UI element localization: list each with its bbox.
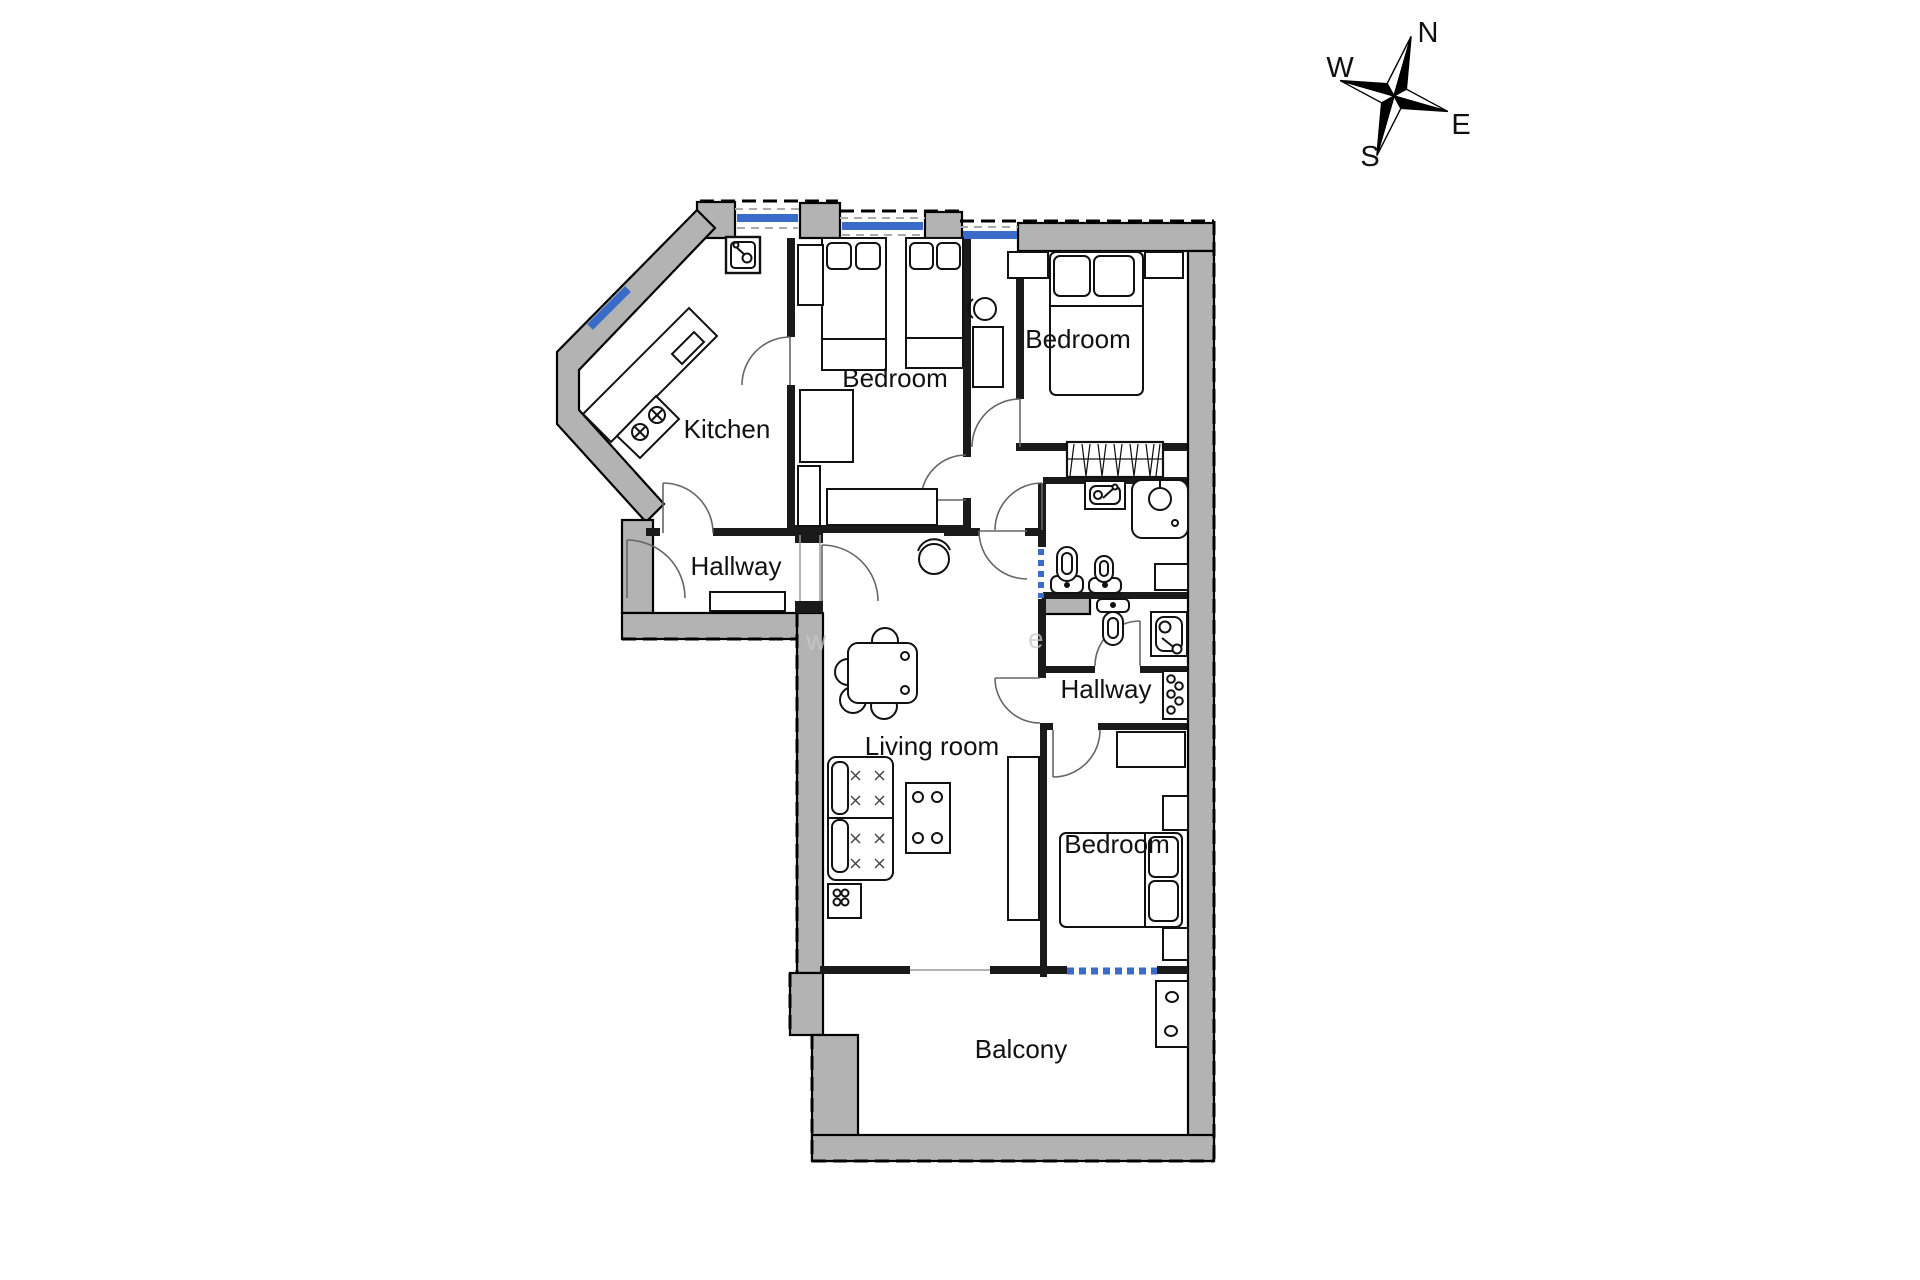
compass-star bbox=[1323, 21, 1465, 171]
wall-kitchen-east-lower bbox=[787, 385, 795, 533]
side-table bbox=[828, 884, 861, 918]
label-bedroom-bottom: Bedroom bbox=[1064, 829, 1170, 859]
wall-top-pier3 bbox=[925, 212, 962, 238]
compass-west-label: W bbox=[1326, 52, 1354, 84]
wc-toilet bbox=[1097, 599, 1129, 645]
wall-balcony-step bbox=[790, 973, 823, 1035]
label-bedroom-top-left: Bedroom bbox=[842, 363, 948, 393]
wc-sink bbox=[1151, 612, 1187, 656]
compass-east-label: E bbox=[1451, 109, 1470, 141]
kitchen-sink bbox=[726, 237, 760, 273]
wall-wc-notch bbox=[1043, 597, 1090, 614]
hallway1-shelf bbox=[710, 592, 785, 611]
bed-single-left bbox=[822, 238, 886, 370]
door-corridor-living bbox=[979, 531, 1027, 579]
dresser bbox=[827, 489, 937, 525]
wardrobe bbox=[1117, 732, 1185, 767]
door-kitchen-hallway bbox=[663, 483, 713, 533]
compass-north-label: N bbox=[1418, 17, 1439, 49]
compass-south-label: S bbox=[1360, 141, 1379, 173]
floor-plan: w e Kitchen Bedroom Bedroom Hallway Hall… bbox=[0, 0, 1920, 1280]
watermark-left: w bbox=[805, 625, 827, 656]
compass: N W E S bbox=[1323, 17, 1471, 173]
dining-set bbox=[835, 628, 917, 719]
niche-stool bbox=[968, 298, 996, 320]
wall-bedroom1-east-lower bbox=[963, 498, 971, 533]
label-kitchen: Kitchen bbox=[684, 414, 771, 444]
wall-bedroom1-east-upper bbox=[963, 238, 971, 457]
door-bedroom3 bbox=[1053, 730, 1100, 777]
watermark: w e bbox=[805, 623, 1044, 656]
wall-wc-south-a bbox=[1043, 666, 1095, 673]
coffee-table bbox=[906, 783, 950, 853]
door-bedroom2 bbox=[972, 399, 1020, 447]
living-room-furniture bbox=[828, 539, 1039, 920]
nightstand-right bbox=[1145, 252, 1183, 278]
shelf-b bbox=[1163, 928, 1188, 960]
wall-bedroom3-west bbox=[1040, 723, 1047, 977]
wall-hallway-south-band bbox=[622, 613, 800, 639]
wardrobe-a bbox=[798, 245, 823, 305]
floorplan-page: w e Kitchen Bedroom Bedroom Hallway Hall… bbox=[0, 0, 1920, 1280]
bidet bbox=[1089, 556, 1121, 593]
label-balcony: Balcony bbox=[975, 1034, 1068, 1064]
radiator bbox=[1067, 442, 1163, 477]
wc-fixtures bbox=[1097, 599, 1187, 656]
wall-living-west-band bbox=[797, 613, 823, 973]
door-kitchen-bedroom1 bbox=[742, 337, 790, 385]
wall-hallway1-north-a bbox=[646, 528, 660, 536]
wall-kitchen-east-upper bbox=[787, 238, 795, 337]
toilet bbox=[1051, 547, 1083, 593]
room-labels: Kitchen Bedroom Bedroom Hallway Hallway … bbox=[684, 324, 1170, 1064]
wall-bedroom3-north-b bbox=[1098, 723, 1187, 730]
desk bbox=[800, 390, 853, 462]
bath-sink bbox=[1085, 481, 1125, 509]
wall-bedroom3-south-a bbox=[1047, 966, 1067, 974]
wall-hallway1-north-b bbox=[713, 528, 797, 536]
label-hallway-left: Hallway bbox=[690, 551, 781, 581]
sofa bbox=[828, 757, 893, 880]
door-hallway2-living bbox=[995, 678, 1040, 723]
hallway2-heater bbox=[1163, 671, 1188, 719]
bed-single-right bbox=[906, 238, 963, 368]
bathroom-fixtures bbox=[1051, 442, 1188, 593]
label-living-room: Living room bbox=[865, 731, 999, 761]
balcony-furniture bbox=[1156, 981, 1188, 1047]
wall-corridor-south-a bbox=[944, 528, 980, 536]
tv-cabinet bbox=[1008, 757, 1039, 920]
bathtub bbox=[1132, 479, 1188, 538]
watermark-right: e bbox=[1028, 623, 1044, 654]
nightstand-left bbox=[1008, 252, 1048, 278]
door-hallway-living bbox=[822, 545, 878, 601]
plant bbox=[918, 539, 950, 574]
label-hallway-right: Hallway bbox=[1060, 674, 1151, 704]
wall-right-band bbox=[1188, 251, 1214, 1161]
planter-box bbox=[1156, 981, 1188, 1047]
wall-top-pier2 bbox=[800, 203, 840, 238]
door-bath-vestibule bbox=[995, 483, 1042, 530]
wall-hallway1-door-top bbox=[795, 533, 823, 543]
wall-hallway1-door-bottom bbox=[795, 601, 823, 613]
niche-shelf bbox=[973, 327, 1003, 387]
bath-shelf bbox=[1155, 564, 1188, 590]
label-bedroom-top-right: Bedroom bbox=[1025, 324, 1131, 354]
wall-bedroom2-south-east bbox=[1163, 443, 1187, 451]
wall-bedroom2-south bbox=[1016, 443, 1071, 451]
wall-balcony-bottom bbox=[812, 1135, 1214, 1161]
wardrobe-b bbox=[798, 466, 820, 526]
wall-bedroom3-south-b bbox=[1157, 966, 1188, 974]
wall-living-south-b bbox=[990, 966, 1047, 974]
wall-bedroom3-north-a bbox=[1043, 723, 1053, 730]
wall-living-south-a bbox=[820, 966, 910, 974]
shelf-a bbox=[1163, 796, 1188, 830]
wall-bedroom2-top bbox=[1018, 223, 1214, 251]
